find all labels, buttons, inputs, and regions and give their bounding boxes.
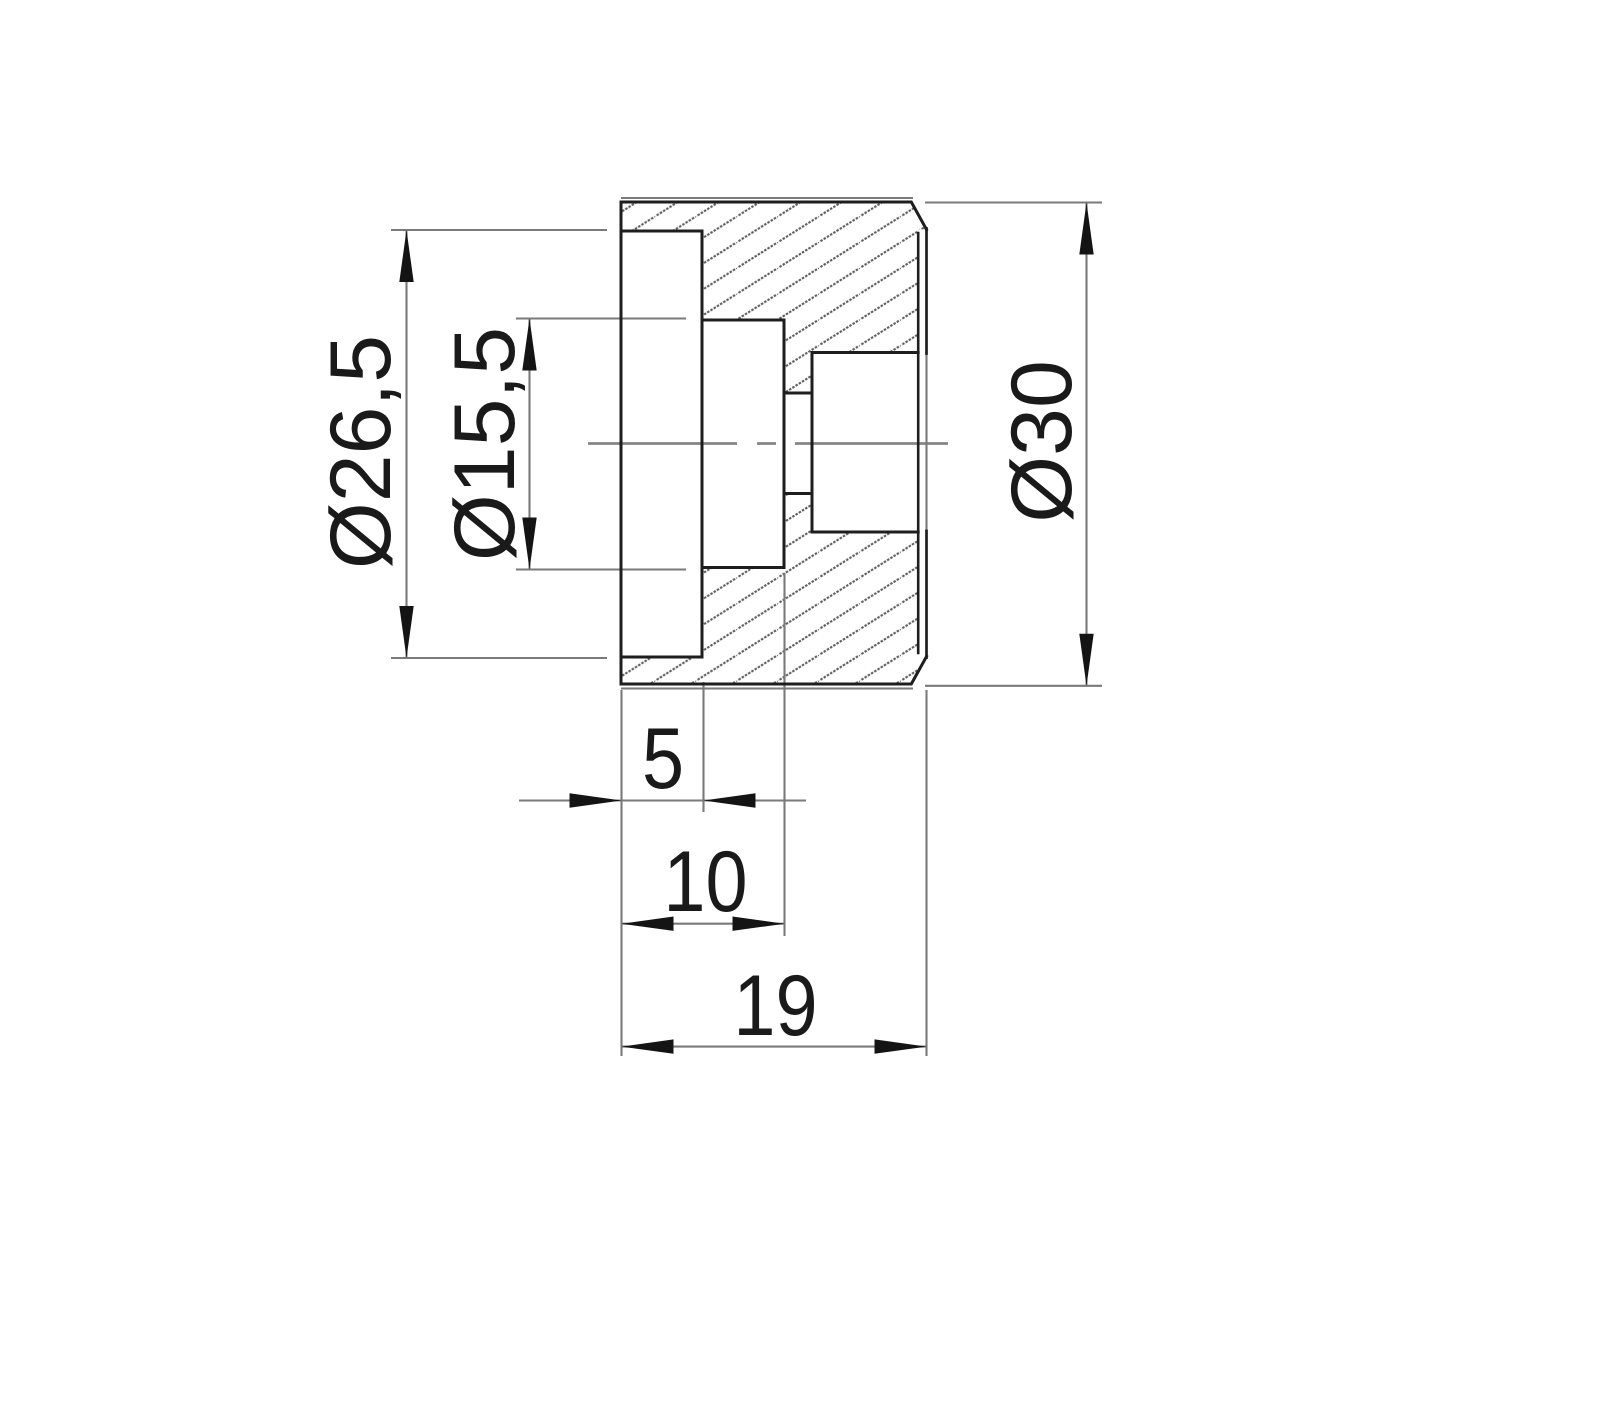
svg-text:Ø30: Ø30 — [994, 360, 1090, 523]
svg-text:Ø26,5: Ø26,5 — [313, 335, 409, 569]
svg-text:Ø15,5: Ø15,5 — [437, 327, 533, 561]
svg-text:19: 19 — [733, 959, 817, 1055]
svg-text:5: 5 — [642, 712, 684, 808]
svg-text:10: 10 — [663, 835, 747, 931]
